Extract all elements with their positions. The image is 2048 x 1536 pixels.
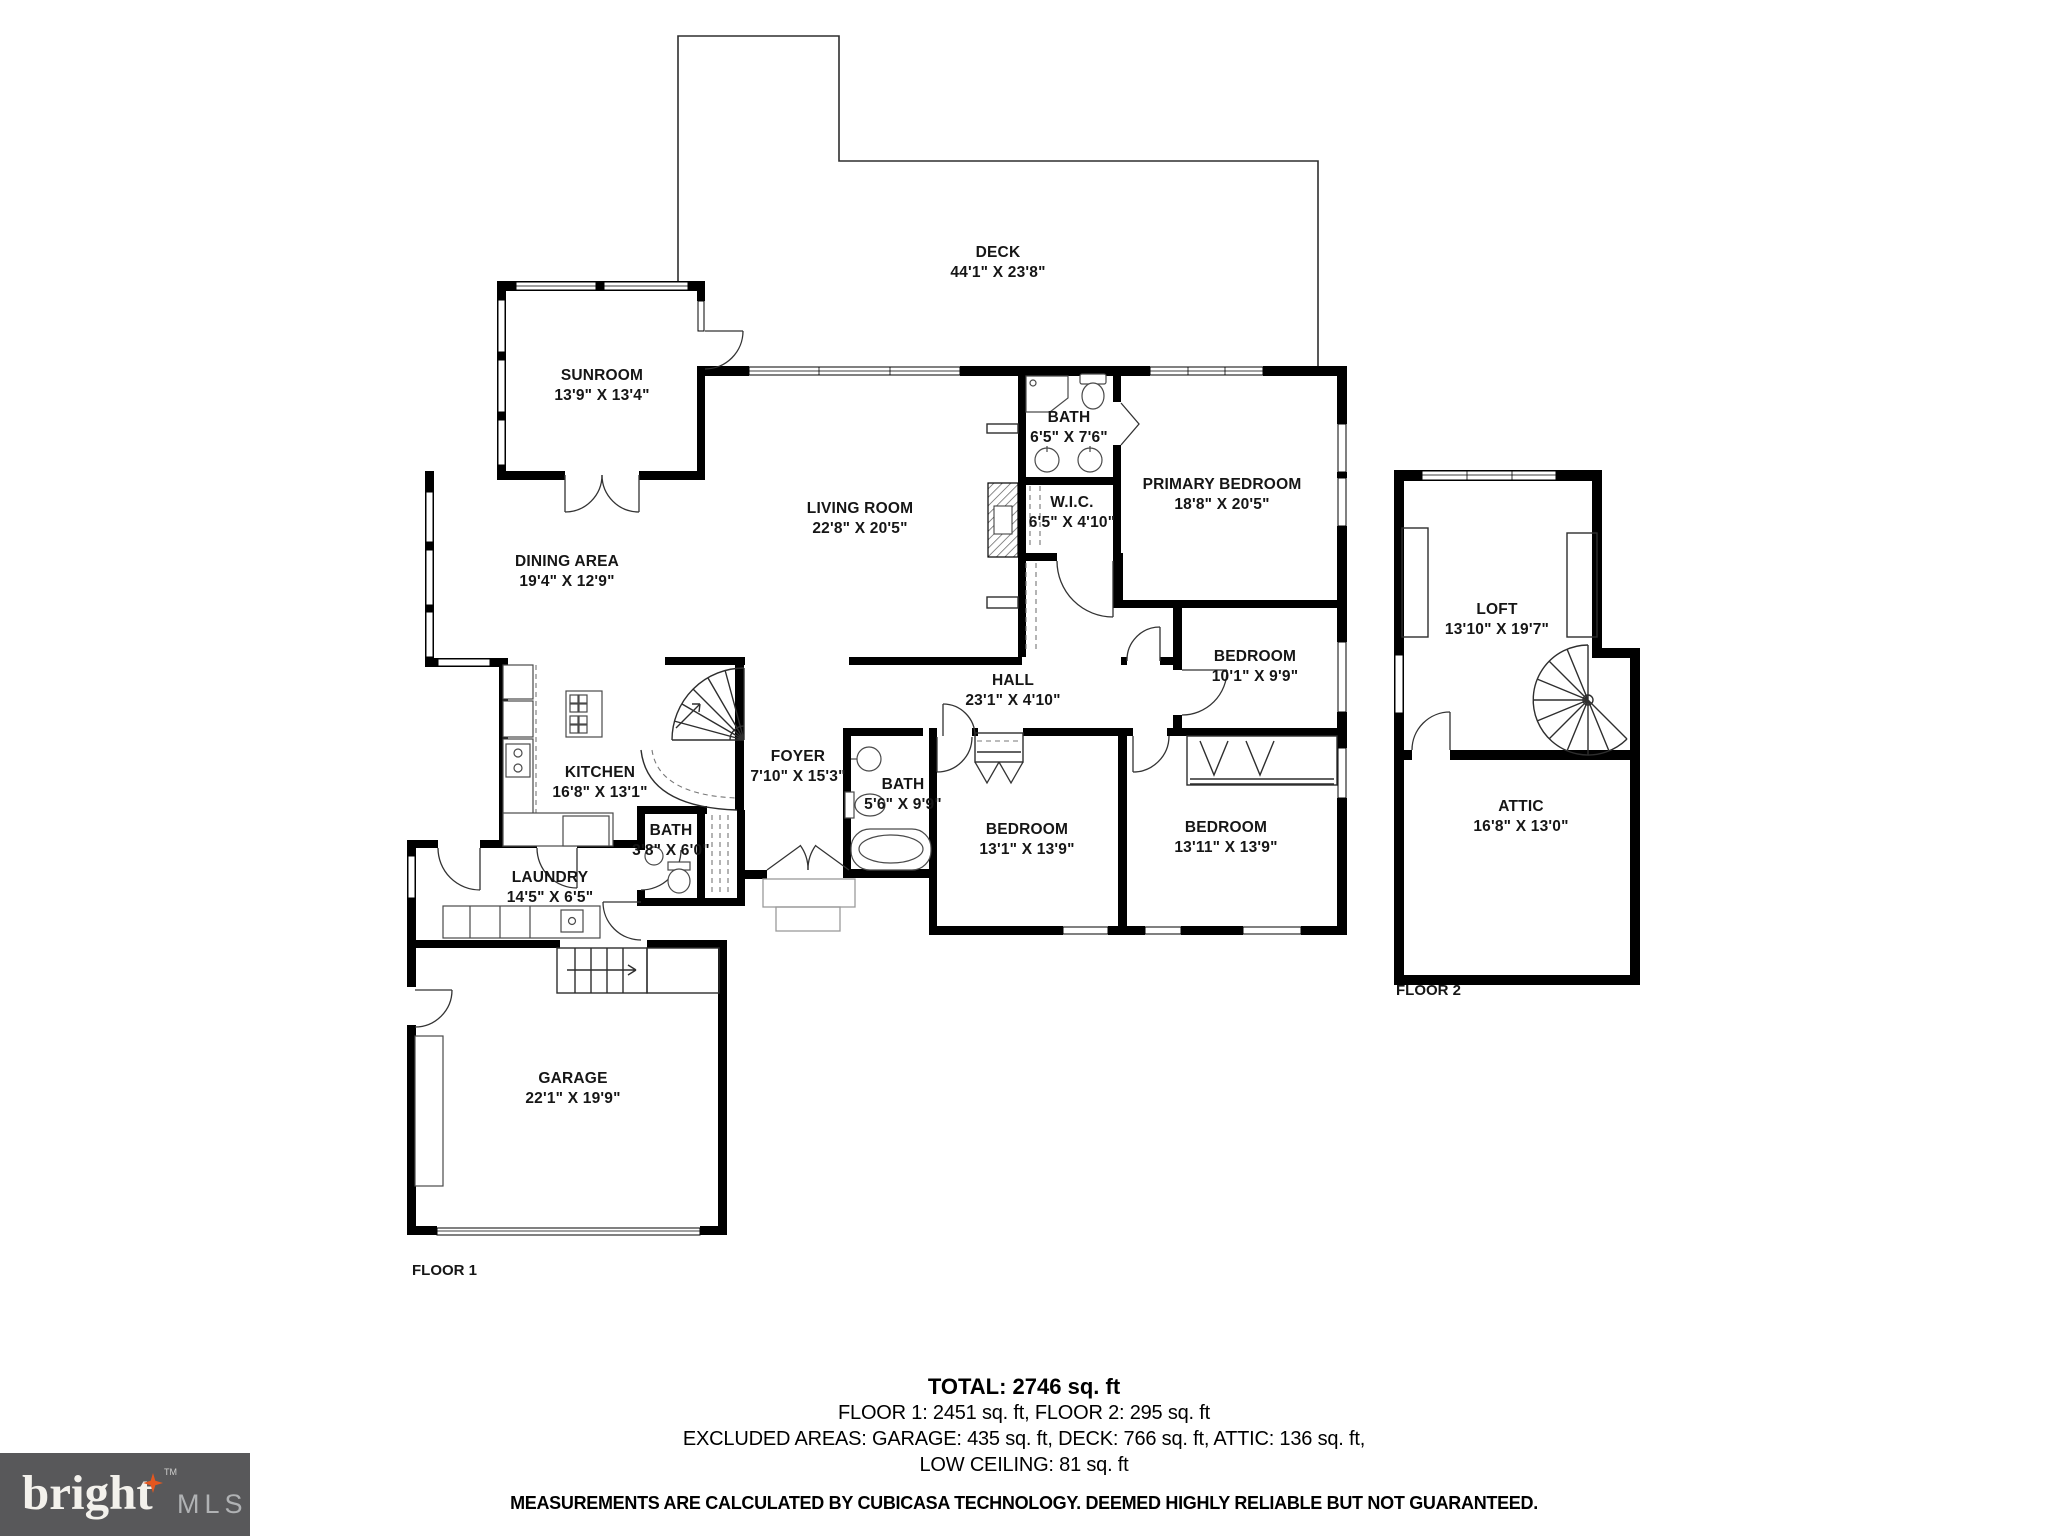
room-name: BEDROOM (979, 820, 1074, 840)
room-dims: 19'4" X 12'9" (515, 572, 619, 592)
room-label-deck: DECK 44'1" X 23'8" (950, 243, 1045, 283)
garage-shelf (415, 1036, 443, 1186)
room-label-attic: ATTIC 16'8" X 13'0" (1473, 797, 1568, 837)
room-label-kitchen: KITCHEN 16'8" X 13'1" (552, 763, 647, 803)
room-dims: 22'1" X 19'9" (525, 1089, 620, 1109)
room-dims: 18'8" X 20'5" (1143, 495, 1302, 515)
room-label-wic: W.I.C. 6'5" X 4'10" (1029, 493, 1116, 533)
room-label-foyer: FOYER 7'10" X 15'3" (750, 747, 845, 787)
floorplan-page: DECK 44'1" X 23'8" SUNROOM 13'9" X 13'4"… (0, 0, 2048, 1536)
room-name: HALL (965, 671, 1060, 691)
room-name: SUNROOM (554, 366, 649, 386)
room-dims: 22'8" X 20'5" (807, 519, 913, 539)
room-dims: 13'11" X 13'9" (1174, 838, 1277, 858)
bright-mls-logo: bright TM MLS (0, 1453, 250, 1536)
room-name: ATTIC (1473, 797, 1568, 817)
logo-brand-text: bright (22, 1455, 153, 1531)
room-dims: 13'10" X 19'7" (1445, 620, 1549, 640)
room-name: DECK (950, 243, 1045, 263)
toilet-tank (845, 792, 854, 818)
room-label-living-room: LIVING ROOM 22'8" X 20'5" (807, 499, 913, 539)
room-label-bath-hall: BATH 5'6" X 9'9" (864, 775, 942, 815)
room-name: BATH (632, 821, 710, 841)
room-label-loft: LOFT 13'10" X 19'7" (1445, 600, 1549, 640)
area-summary: TOTAL: 2746 sq. ft FLOOR 1: 2451 sq. ft,… (0, 1374, 2048, 1514)
room-name: LIVING ROOM (807, 499, 913, 519)
room-label-bedroom-mid: BEDROOM 13'1" X 13'9" (979, 820, 1074, 860)
refrigerator (503, 665, 533, 699)
room-name: LAUNDRY (507, 868, 594, 888)
room-dims: 16'8" X 13'0" (1473, 817, 1568, 837)
room-dims: 7'10" X 15'3" (750, 767, 845, 787)
floor2-label: FLOOR 2 (1396, 982, 1461, 1000)
floor1-label: FLOOR 1 (412, 1262, 477, 1280)
room-dims: 14'5" X 6'5" (507, 888, 594, 908)
room-name: GARAGE (525, 1069, 620, 1089)
room-name: BATH (864, 775, 942, 795)
room-label-bath-powder: BATH 3'8" X 6'0" (632, 821, 710, 861)
logo-tm: TM (164, 1467, 177, 1477)
room-label-sunroom: SUNROOM 13'9" X 13'4" (554, 366, 649, 406)
porch-steps (763, 879, 855, 931)
room-dims: 6'5" X 7'6" (1030, 428, 1108, 448)
room-dims: 23'1" X 4'10" (965, 691, 1060, 711)
room-dims: 5'6" X 9'9" (864, 795, 942, 815)
room-name: DINING AREA (515, 552, 619, 572)
floorplan-drawing (0, 0, 2048, 1536)
room-name: FOYER (750, 747, 845, 767)
excluded-areas: EXCLUDED AREAS: GARAGE: 435 sq. ft, DECK… (0, 1426, 2048, 1452)
room-dims: 3'8" X 6'0" (632, 841, 710, 861)
room-name: W.I.C. (1029, 493, 1116, 513)
logo-mls-text: MLS (177, 1489, 248, 1519)
room-dims: 13'1" X 13'9" (979, 840, 1074, 860)
room-name: LOFT (1445, 600, 1549, 620)
sink (857, 747, 881, 771)
room-dims: 44'1" X 23'8" (950, 263, 1045, 283)
room-name: PRIMARY BEDROOM (1143, 475, 1302, 495)
toilet (1082, 383, 1104, 409)
total-area: TOTAL: 2746 sq. ft (0, 1374, 2048, 1400)
room-label-bedroom-right: BEDROOM 13'11" X 13'9" (1174, 818, 1277, 858)
room-dims: 10'1" X 9'9" (1212, 667, 1299, 687)
room-label-hall: HALL 23'1" X 4'10" (965, 671, 1060, 711)
toilet (668, 869, 690, 893)
room-label-bath-primary: BATH 6'5" X 7'6" (1030, 408, 1108, 448)
room-label-garage: GARAGE 22'1" X 19'9" (525, 1069, 620, 1109)
disclaimer-text: MEASUREMENTS ARE CALCULATED BY CUBICASA … (0, 1492, 2048, 1514)
room-dims: 13'9" X 13'4" (554, 386, 649, 406)
room-name: BEDROOM (1174, 818, 1277, 838)
low-ceiling-area: LOW CEILING: 81 sq. ft (0, 1452, 2048, 1478)
fireplace (988, 483, 1018, 557)
room-dims: 6'5" X 4'10" (1029, 513, 1116, 533)
room-dims: 16'8" X 13'1" (552, 783, 647, 803)
room-name: KITCHEN (552, 763, 647, 783)
room-label-laundry: LAUNDRY 14'5" X 6'5" (507, 868, 594, 908)
floor-areas: FLOOR 1: 2451 sq. ft, FLOOR 2: 295 sq. f… (0, 1400, 2048, 1426)
room-label-dining-area: DINING AREA 19'4" X 12'9" (515, 552, 619, 592)
room-label-bedroom-small: BEDROOM 10'1" X 9'9" (1212, 647, 1299, 687)
room-name: BEDROOM (1212, 647, 1299, 667)
deck-outline (678, 36, 1318, 366)
star-icon (143, 1473, 163, 1498)
dishwasher (563, 816, 609, 846)
room-label-primary-bedroom: PRIMARY BEDROOM 18'8" X 20'5" (1143, 475, 1302, 515)
room-name: BATH (1030, 408, 1108, 428)
